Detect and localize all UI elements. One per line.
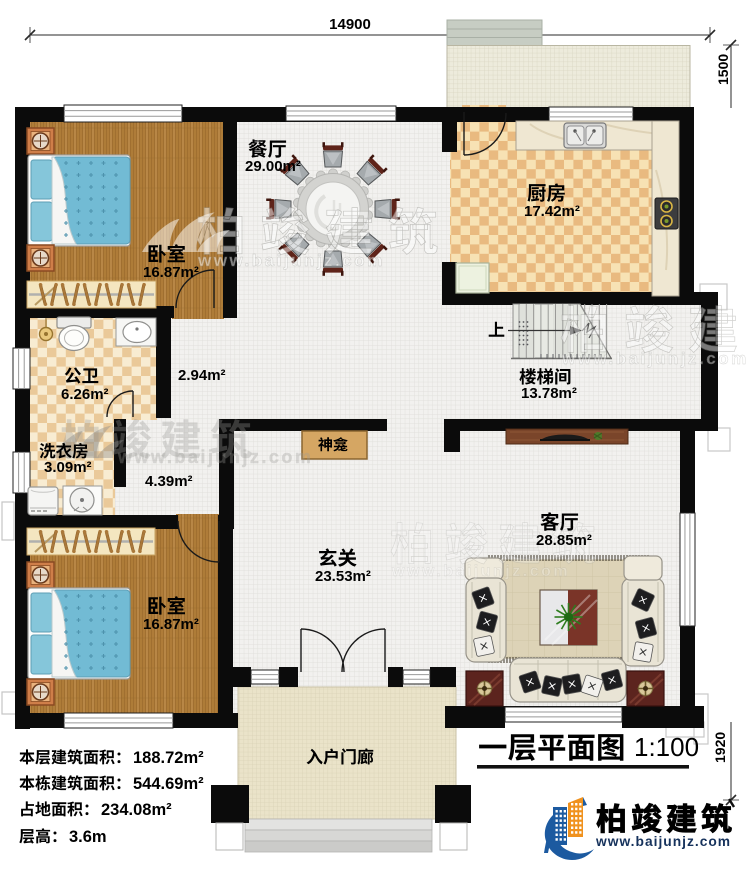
svg-text:16.87m²: 16.87m² [143, 616, 199, 633]
svg-text:16.87m²: 16.87m² [143, 264, 199, 281]
svg-text:www.baijunjz.com: www.baijunjz.com [197, 251, 385, 270]
svg-text:234.08m²: 234.08m² [101, 801, 172, 819]
svg-text:2.94m²: 2.94m² [178, 367, 226, 384]
svg-text:1:100: 1:100 [634, 732, 699, 762]
svg-text:13.78m²: 13.78m² [521, 385, 577, 402]
svg-text:1500: 1500 [715, 54, 731, 85]
svg-text:6.26m²: 6.26m² [61, 386, 109, 403]
svg-text:544.69m²: 544.69m² [133, 775, 204, 793]
svg-text:4.39m²: 4.39m² [145, 473, 193, 490]
svg-text:14900: 14900 [329, 16, 371, 33]
svg-text:188.72m²: 188.72m² [133, 749, 204, 767]
svg-text:29.00m²: 29.00m² [245, 158, 301, 175]
svg-text:3.6m: 3.6m [69, 828, 107, 846]
svg-text:www.baijunjz.com: www.baijunjz.com [391, 563, 570, 580]
svg-text:www.baijunjz.com: www.baijunjz.com [561, 349, 749, 368]
svg-text:3.09m²: 3.09m² [44, 459, 92, 476]
svg-text:www.baijunjz.com: www.baijunjz.com [117, 447, 313, 467]
svg-text:17.42m²: 17.42m² [524, 203, 580, 220]
svg-text:www.baijunjz.com: www.baijunjz.com [595, 834, 731, 849]
svg-text:28.85m²: 28.85m² [536, 532, 592, 549]
svg-text:23.53m²: 23.53m² [315, 568, 371, 585]
svg-text:1920: 1920 [712, 732, 728, 763]
